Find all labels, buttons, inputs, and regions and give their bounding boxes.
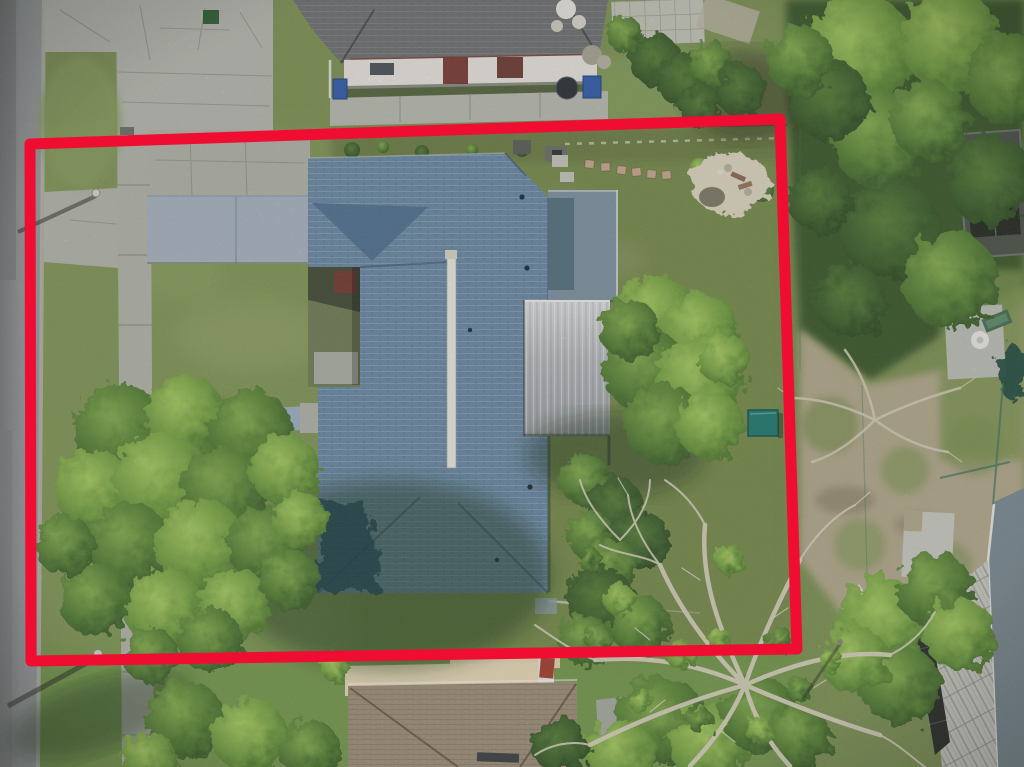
aerial-photo	[0, 0, 1024, 767]
aerial-photo-canvas	[0, 0, 1024, 767]
